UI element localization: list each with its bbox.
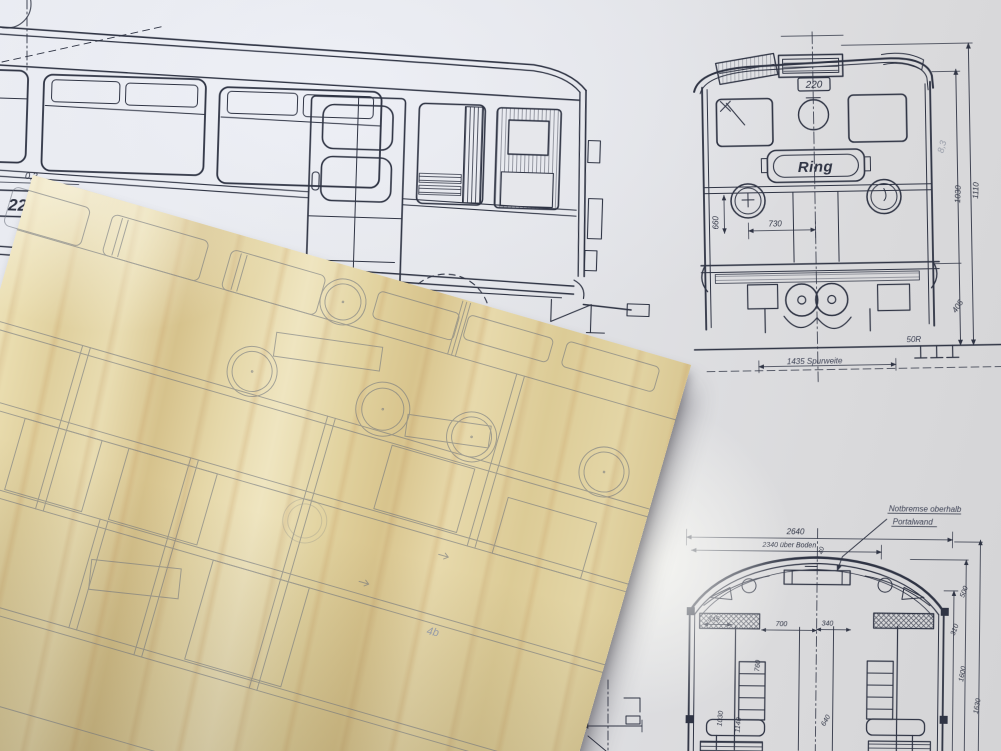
annotation-notbremse: Notbremse oberhalb	[889, 504, 962, 514]
dim-label-640: 640	[820, 714, 832, 728]
side-view-entrance	[416, 103, 485, 205]
front-view-car-number: 220	[805, 80, 823, 91]
front-view-windows	[716, 94, 907, 146]
dim-label-1110: 1110	[971, 182, 981, 199]
side-view-windows	[0, 69, 382, 188]
dim-label-1030: 1030	[953, 185, 963, 204]
side-view-cab-door	[494, 108, 561, 210]
dim-label-340: 340	[822, 621, 834, 628]
front-view-destination-text: Ring	[798, 158, 834, 176]
dim-label-405: 405	[950, 298, 965, 315]
dim-label-500: 500	[959, 585, 970, 598]
dim-label-310: 310	[950, 623, 961, 636]
track-gauge-note: 1435 Spurweite	[787, 356, 843, 366]
dim-label-730: 730	[768, 219, 782, 228]
pencil-note-83: 8,3	[935, 139, 948, 154]
radiator-right	[868, 741, 930, 751]
dim-label-1630: 1630	[973, 698, 983, 715]
front-view-running-gear	[747, 282, 910, 333]
annotation-portalwand: Portalwand	[893, 517, 934, 526]
dim-label-1140: 1140	[735, 717, 743, 733]
dim-label-40: 40	[818, 546, 827, 555]
dim-label-1600: 1600	[958, 666, 968, 683]
luggage-rack-right	[874, 613, 934, 629]
blueprint-front-view: 220 Ring 660 730 1030 1110 405 50R 1435 …	[685, 22, 1001, 388]
radiator-left	[700, 741, 762, 751]
dim-label-660: 660	[711, 216, 720, 230]
cross-section-centerline	[815, 528, 817, 751]
side-view-note-left: 5	[0, 180, 1, 190]
photo-of-blueprints-and-board: 220 0,3 5	[0, 0, 1001, 751]
front-view-rail-line	[695, 344, 1001, 349]
pencil-mark-4b: 4b	[425, 625, 439, 639]
rail-radius-note: 50R	[906, 335, 921, 344]
